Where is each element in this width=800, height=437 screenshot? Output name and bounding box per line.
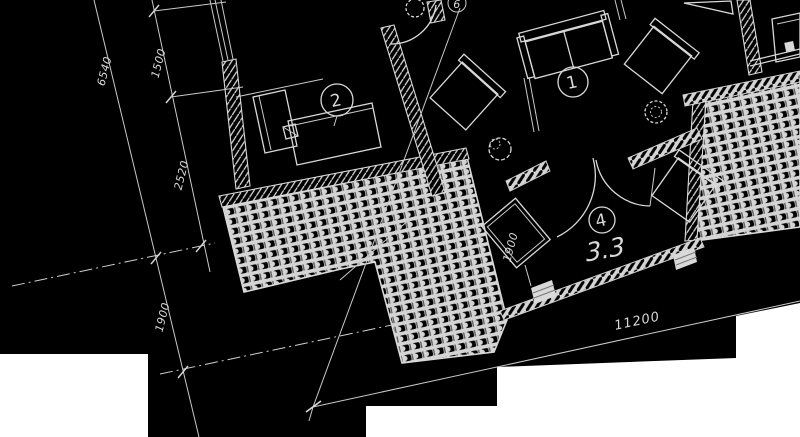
cutout-bottom-left [0,354,148,437]
floor-plan-canvas: 6540 1500 2520 1900 1900 6 11200 3.3 1 2… [0,0,800,437]
floor-plan-drawing: 6540 1500 2520 1900 1900 6 11200 3.3 1 2… [0,0,800,437]
marker-6: 6 [453,0,461,11]
